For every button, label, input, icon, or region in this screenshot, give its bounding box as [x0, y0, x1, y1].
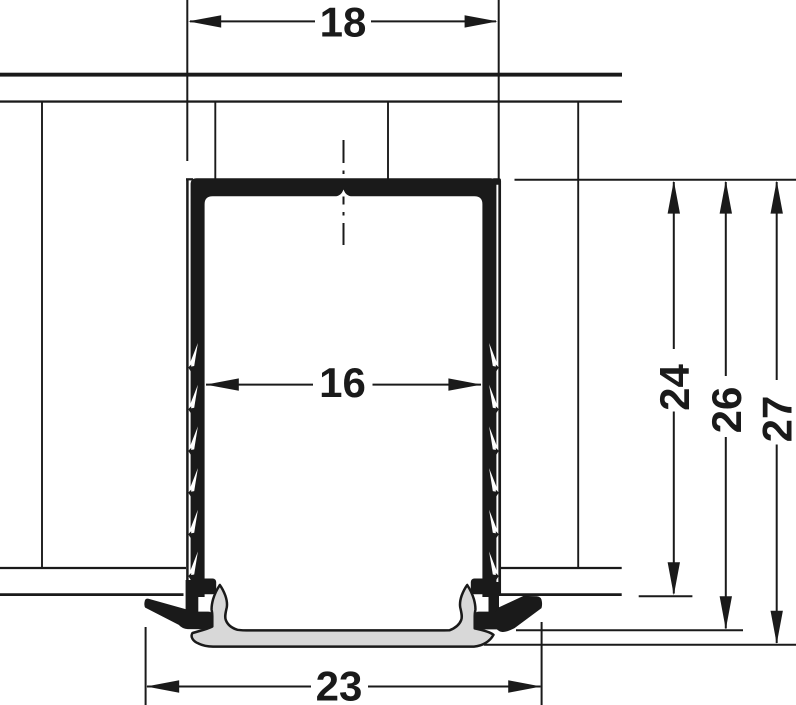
svg-text:26: 26	[703, 387, 750, 434]
svg-text:18: 18	[320, 0, 367, 46]
svg-text:24: 24	[651, 364, 698, 411]
svg-text:16: 16	[319, 359, 366, 406]
svg-text:27: 27	[754, 396, 796, 443]
svg-text:23: 23	[316, 663, 363, 705]
